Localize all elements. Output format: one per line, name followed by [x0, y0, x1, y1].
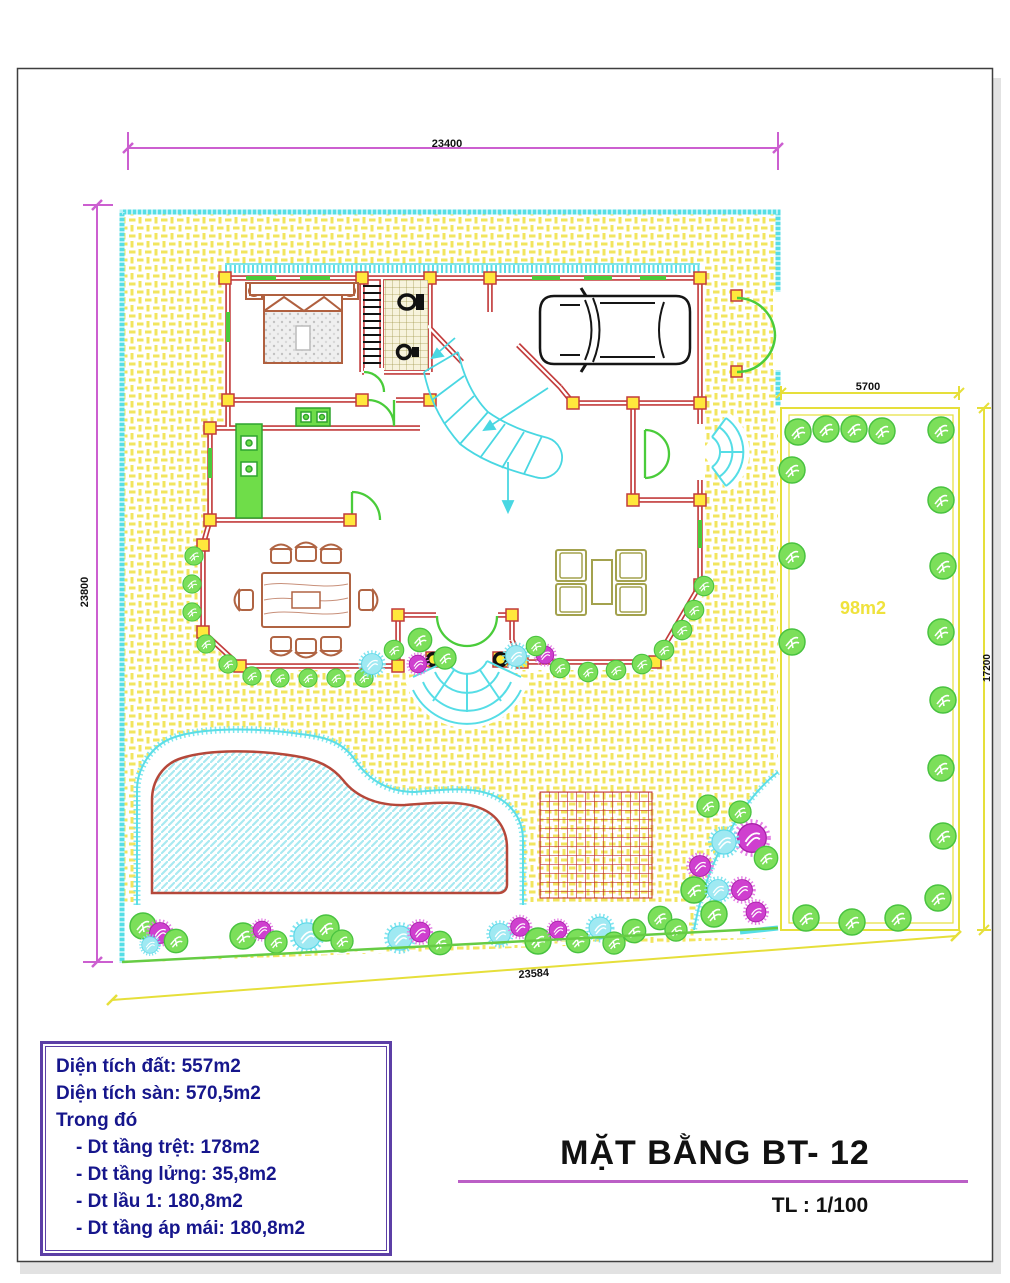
dimension-text-left: 23800 [79, 577, 91, 608]
dimension-text-bottom: 23584 [518, 967, 550, 981]
trellis-grid [540, 792, 652, 898]
legend-line: Diện tích đất: 557m2 [56, 1053, 378, 1080]
legend-line: Diện tích sàn: 570,5m2 [56, 1080, 378, 1107]
garage-car [540, 288, 690, 372]
dimension-top: 23400 [123, 132, 783, 170]
dimension-text-garden-top: 5700 [856, 381, 880, 393]
bathroom [384, 280, 428, 370]
drawing-sheet: 98m2 [0, 0, 1010, 1283]
legend-line: - Dt lầu 1: 180,8m2 [56, 1188, 378, 1215]
title-underline [458, 1180, 968, 1183]
dimension-left: 23800 [79, 200, 113, 967]
scale-label: TL : 1/100 [700, 1194, 940, 1218]
dimension-garden-right: 17200 [977, 403, 993, 935]
area-legend-box: Diện tích đất: 557m2 Diện tích sàn: 570,… [40, 1041, 392, 1256]
legend-line: Trong đó [56, 1107, 378, 1134]
sheet-shadow-bottom [20, 1262, 1001, 1274]
dimension-garden-top: 5700 [776, 381, 964, 400]
legend-line: - Dt tầng áp mái: 180,8m2 [56, 1215, 378, 1242]
sheet-shadow-right [993, 78, 1001, 1268]
garden-area-label: 98m2 [840, 598, 886, 618]
dimension-text-garden-right: 17200 [982, 654, 993, 682]
right-garden: 98m2 [779, 408, 959, 935]
legend-line: - Dt tầng trệt: 178m2 [56, 1134, 378, 1161]
legend-line: - Dt tầng lửng: 35,8m2 [56, 1161, 378, 1188]
coffee-table [592, 560, 612, 604]
dimension-text-top: 23400 [432, 138, 463, 150]
plan-title: MẶT BẰNG BT- 12 [455, 1134, 975, 1173]
